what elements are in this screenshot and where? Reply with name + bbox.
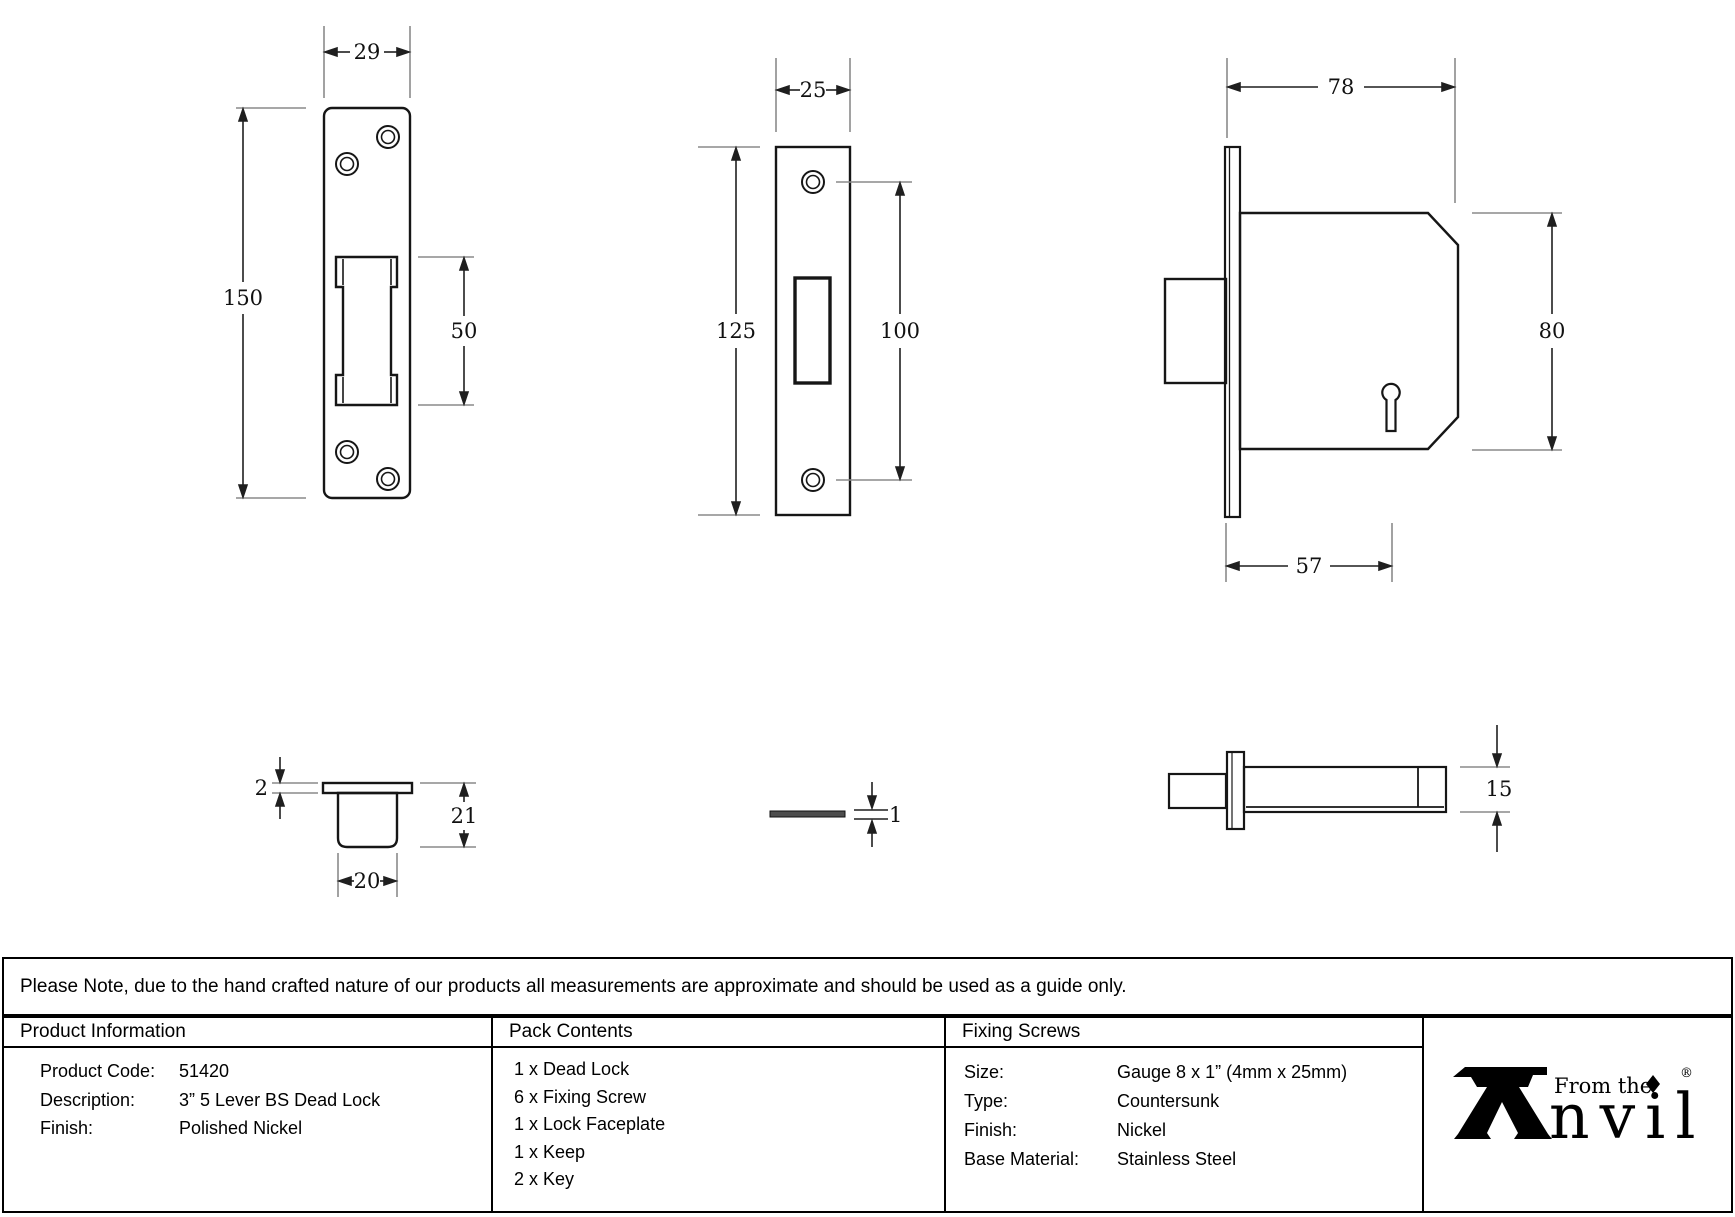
keyhole-icon [1382, 384, 1399, 431]
lock-faceplate-front-drawing [776, 147, 850, 515]
row-value: 51420 [179, 1061, 229, 1081]
dim-keep-flange-thickness: 2 [255, 776, 268, 800]
keep-screw-holes [336, 126, 399, 490]
bolt-top-view [1169, 774, 1226, 808]
dim-keep-slot-height: 50 [451, 319, 478, 343]
keep-slot-outline [336, 257, 397, 405]
keep-slot-ticks [343, 259, 391, 403]
lock-body-side-drawing [1165, 147, 1458, 517]
keep-box [338, 793, 397, 847]
lock-case-outline [1240, 213, 1458, 449]
row-label: Size: [964, 1058, 1112, 1087]
note-text: Please Note, due to the hand crafted nat… [20, 976, 1127, 998]
dim-keep-depth: 21 [451, 804, 478, 828]
fixing-screws-cell: Fixing Screws Size: Gauge 8 x 1” (4mm x … [946, 1018, 1424, 1211]
faceplate-outline [776, 147, 850, 515]
table-row: Finish: Nickel [964, 1116, 1422, 1145]
pack-contents-cell: Pack Contents 1 x Dead Lock 6 x Fixing S… [493, 1018, 946, 1211]
faceplate-edge-plate [770, 811, 845, 817]
table-row: Base Material: Stainless Steel [964, 1145, 1422, 1174]
dim-keep-width: 29 [354, 40, 381, 64]
list-item: 1 x Dead Lock [514, 1056, 944, 1084]
fixing-screws-header: Fixing Screws [946, 1018, 1422, 1048]
table-row: Size: Gauge 8 x 1” (4mm x 25mm) [964, 1058, 1422, 1087]
list-item: 1 x Lock Faceplate [514, 1111, 944, 1139]
dimension-lines [239, 48, 1556, 885]
pack-contents-header: Pack Contents [493, 1018, 944, 1048]
list-item: 1 x Keep [514, 1139, 944, 1167]
row-value: Polished Nickel [179, 1118, 302, 1138]
list-item: 2 x Key [514, 1166, 944, 1194]
anvil-icon [1453, 1067, 1552, 1139]
row-label: Finish: [40, 1114, 174, 1143]
logo-word: nvil [1549, 1080, 1705, 1153]
dim-lock-backset: 57 [1296, 554, 1323, 578]
list-item: 6 x Fixing Screw [514, 1084, 944, 1112]
dimension-drawings: 29 150 50 25 125 100 78 80 57 2 21 20 1 … [0, 0, 1735, 957]
measurement-note: Please Note, due to the hand crafted nat… [2, 957, 1733, 1016]
product-information-header: Product Information [4, 1018, 491, 1048]
dim-faceplate-hole-spacing: 100 [880, 319, 920, 343]
table-row: Type: Countersunk [964, 1087, 1422, 1116]
row-label: Type: [964, 1087, 1112, 1116]
table-row: Product Code: 51420 [40, 1057, 491, 1086]
row-label: Product Code: [40, 1057, 174, 1086]
keep-section-drawing [323, 783, 412, 847]
row-value: Gauge 8 x 1” (4mm x 25mm) [1117, 1062, 1347, 1082]
dim-lock-depth: 78 [1328, 75, 1355, 99]
dim-faceplate-height: 125 [716, 319, 756, 343]
lock-body-top-drawing [1169, 752, 1446, 829]
lock-faceplate-edge [1225, 147, 1240, 517]
product-information-cell: Product Information Product Code: 51420 … [4, 1018, 493, 1211]
row-label: Description: [40, 1086, 174, 1115]
faceplate-top-view [1227, 752, 1244, 829]
dim-faceplate-thickness: 1 [889, 803, 902, 827]
faceplate-screw-holes [802, 171, 824, 491]
keep-front-drawing [324, 108, 410, 498]
dim-keep-box-width: 20 [354, 869, 381, 893]
dim-lock-case-thickness: 15 [1486, 777, 1513, 801]
faceplate-bolt-slot [795, 278, 830, 383]
row-value: Countersunk [1117, 1091, 1219, 1111]
brand-logo-cell: From the nvil ® [1424, 1018, 1731, 1211]
from-the-anvil-logo: From the nvil ® [1450, 1064, 1730, 1168]
technical-drawing-sheet: 29 150 50 25 125 100 78 80 57 2 21 20 1 … [0, 0, 1735, 1217]
case-top-view [1244, 767, 1446, 812]
dim-faceplate-width: 25 [800, 78, 827, 102]
dim-lock-height: 80 [1539, 319, 1566, 343]
row-label: Base Material: [964, 1145, 1112, 1174]
table-row: Description: 3” 5 Lever BS Dead Lock [40, 1086, 491, 1115]
registered-trademark-icon: ® [1680, 1066, 1693, 1081]
row-value: Nickel [1117, 1120, 1166, 1140]
keep-flange [323, 783, 412, 793]
spec-table: Product Information Product Code: 51420 … [2, 1016, 1733, 1213]
row-value: Stainless Steel [1117, 1149, 1236, 1169]
lock-bolt [1165, 279, 1226, 383]
row-value: 3” 5 Lever BS Dead Lock [179, 1090, 380, 1110]
table-row: Finish: Polished Nickel [40, 1114, 491, 1143]
row-label: Finish: [964, 1116, 1112, 1145]
dim-keep-height: 150 [223, 286, 263, 310]
